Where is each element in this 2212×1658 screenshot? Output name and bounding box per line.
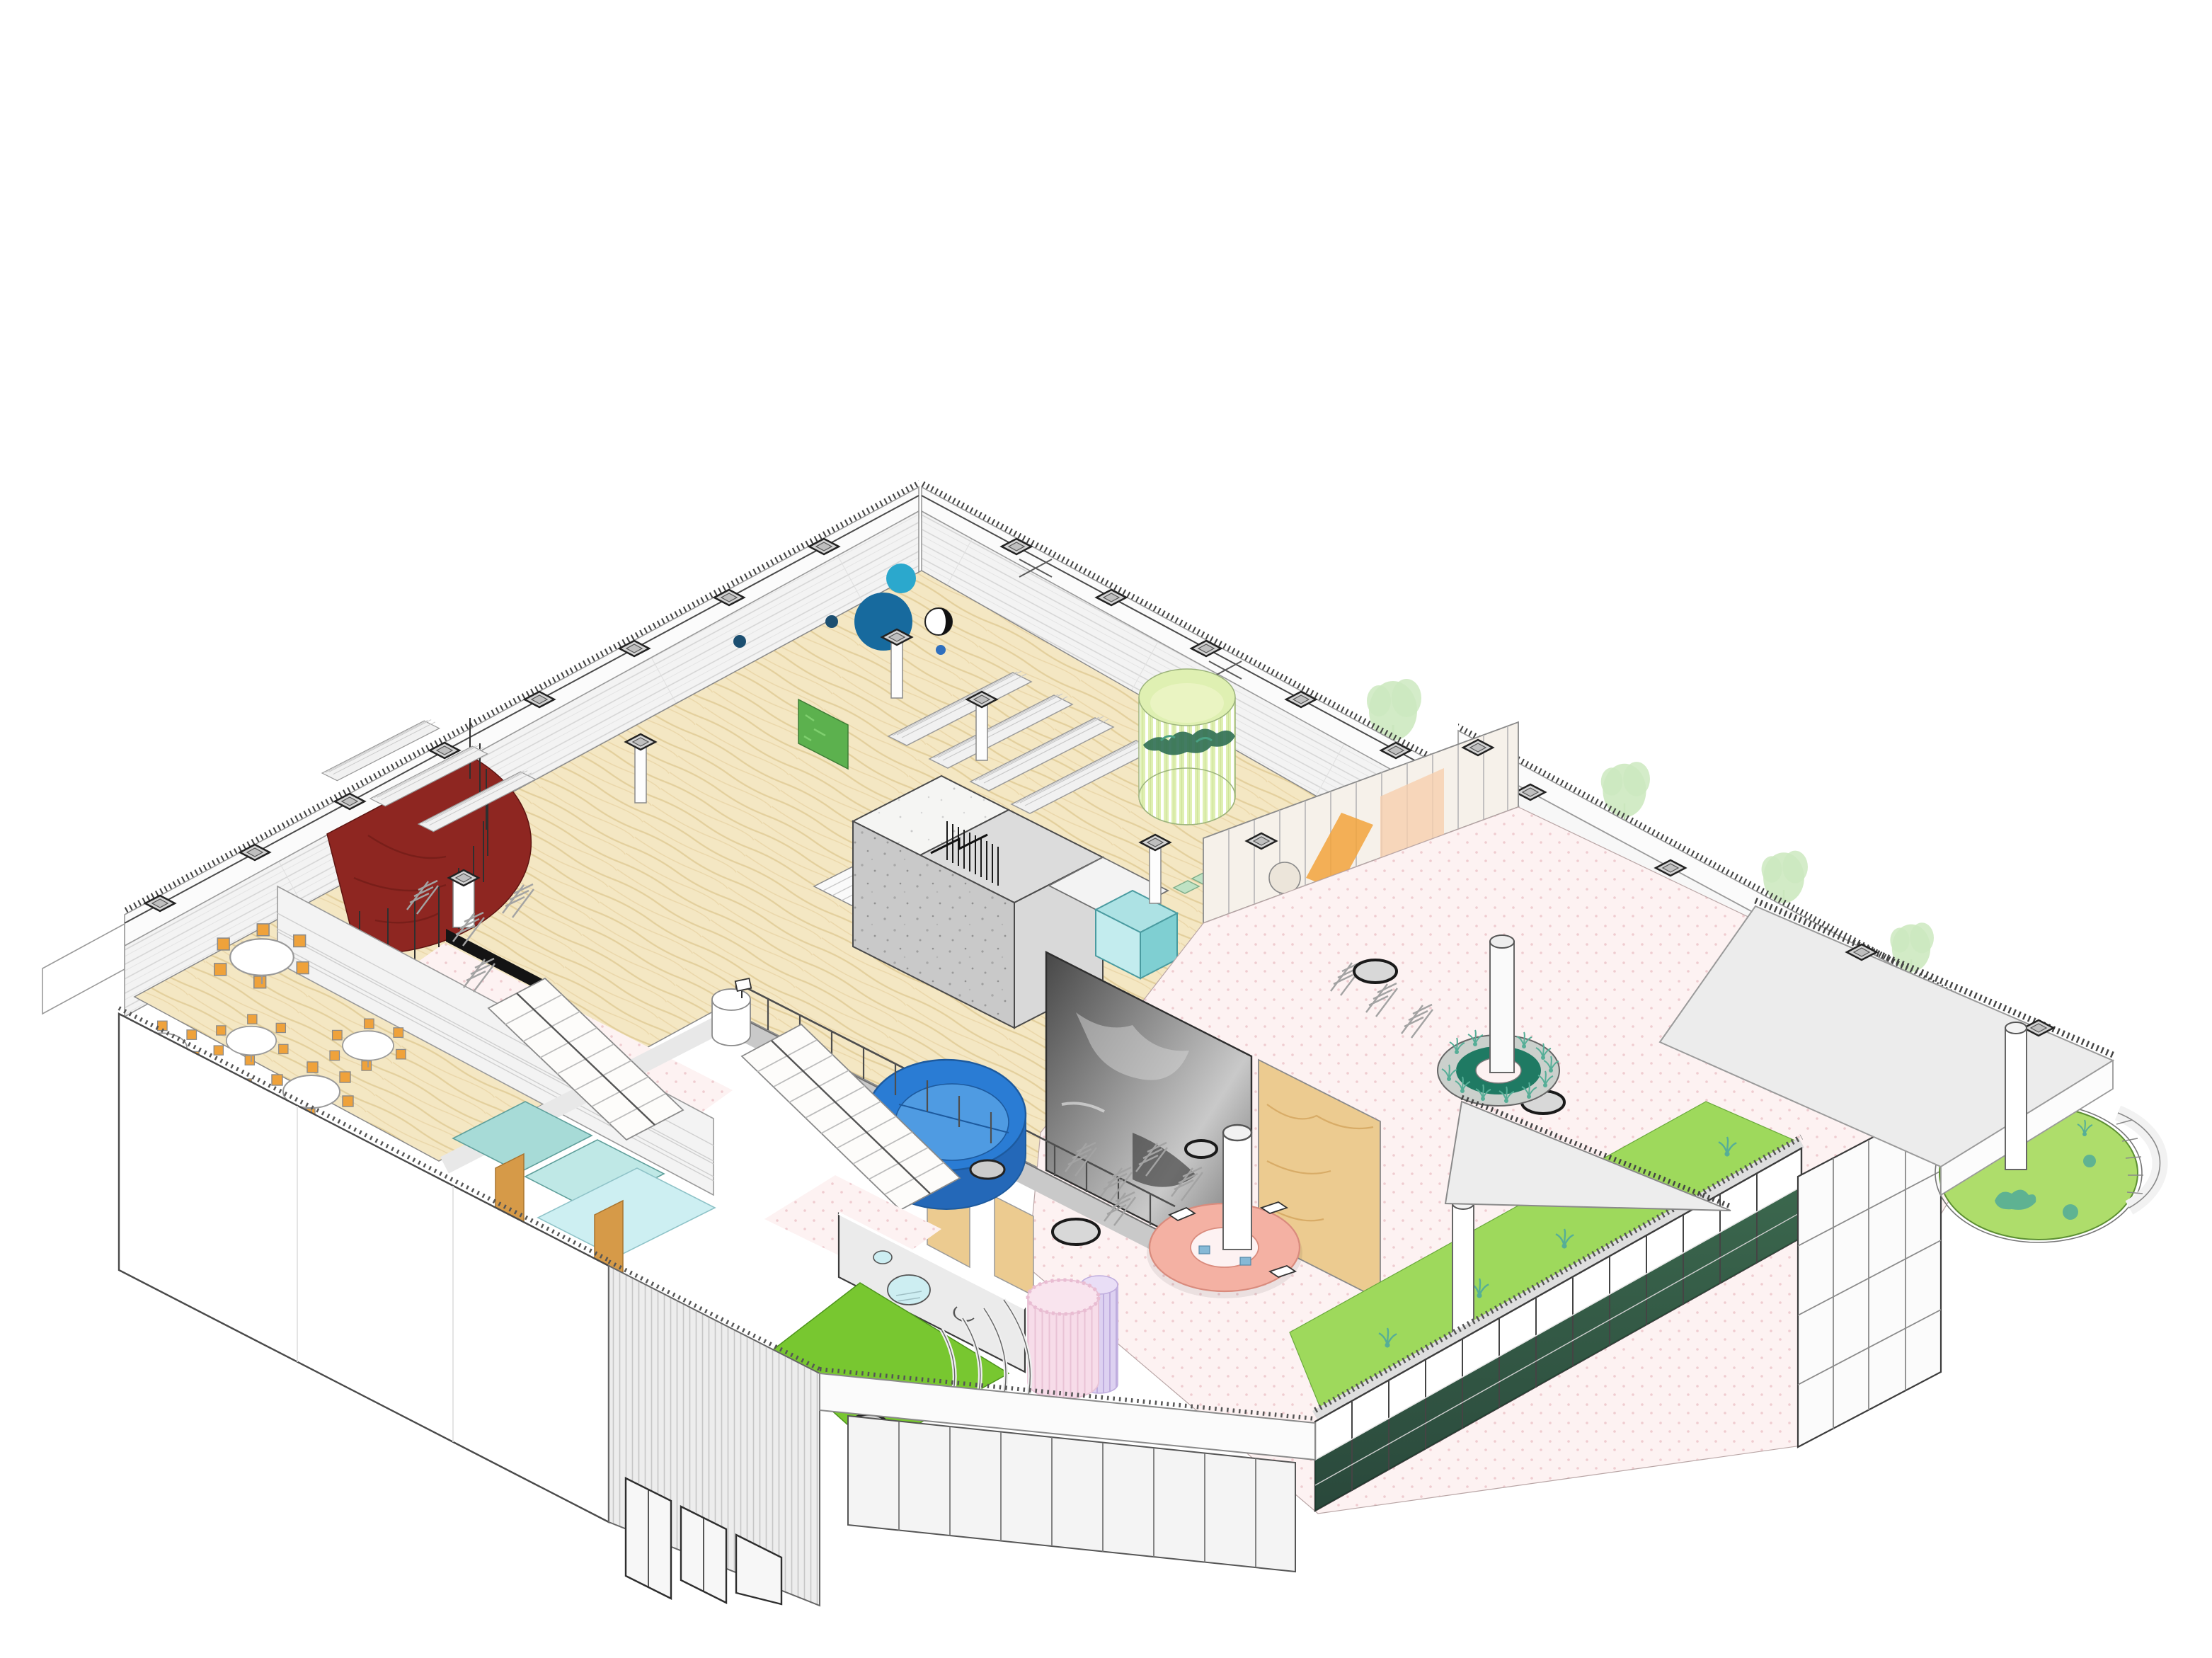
- axonometric-drawing-canvas: [0, 0, 2212, 1658]
- axonometric-drawing: [0, 0, 2212, 1658]
- white-round-column-planter: [1490, 935, 1514, 1073]
- forest-reading-pavilion-cylinder: [1139, 669, 1235, 825]
- fluted-pink-cylinder: [1028, 1280, 1099, 1399]
- white-round-column-garden: [2005, 1022, 2027, 1170]
- white-round-column-desk: [1223, 1125, 1251, 1250]
- computer-monitor-icon: [735, 978, 751, 991]
